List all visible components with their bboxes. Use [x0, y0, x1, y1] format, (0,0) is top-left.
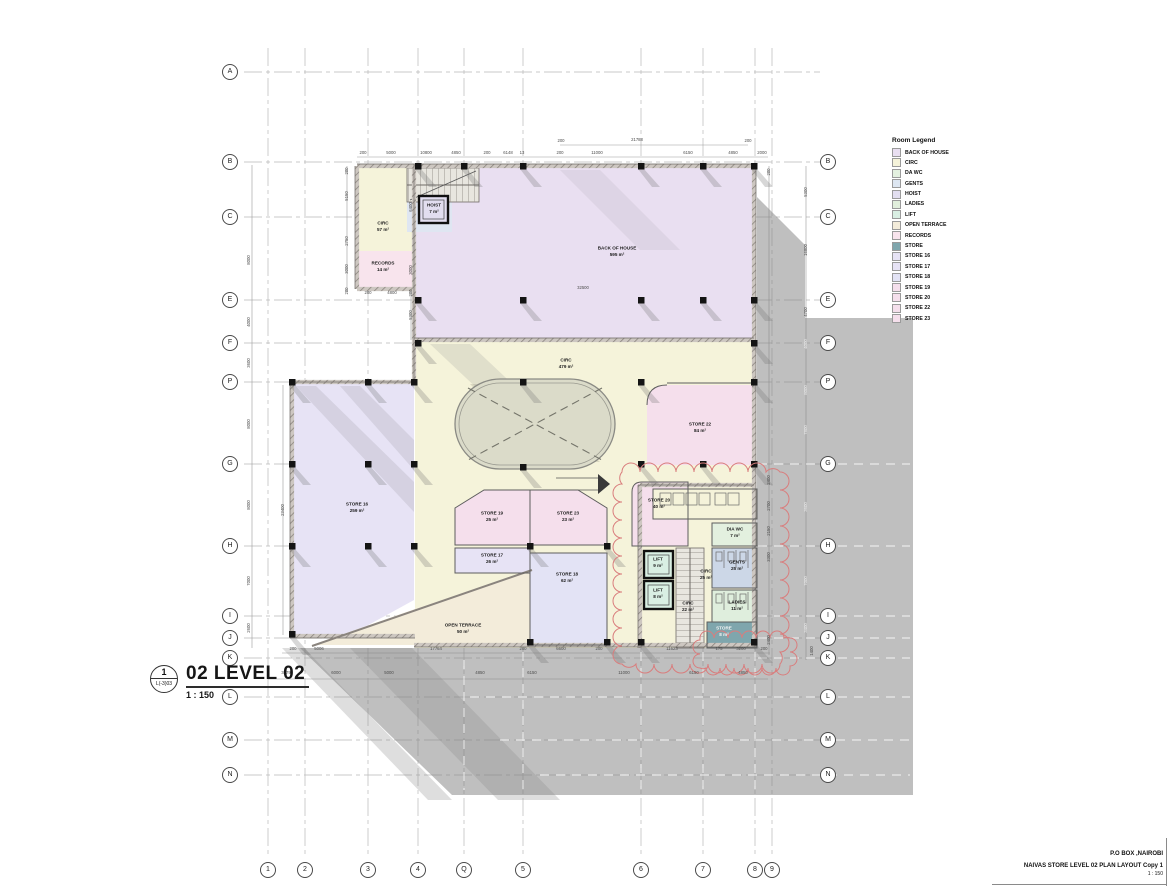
dimension-text: 200 — [359, 150, 366, 155]
dimension-text: 4700 — [803, 307, 808, 316]
legend-label: RECORDS — [905, 233, 931, 239]
dimension-text: 6000 — [331, 670, 340, 675]
dimension-text: 5300 — [408, 310, 413, 319]
room-label: LIFT 8 m² — [653, 588, 663, 600]
dimension-text: 2000 — [757, 150, 766, 155]
legend-label: CIRC — [905, 160, 918, 166]
title-block-border-vertical — [1166, 838, 1167, 886]
grid-bubble: 7 — [695, 862, 711, 878]
room-label: STORE 17 26 m² — [481, 553, 503, 565]
dimension-text: 3000 — [408, 265, 413, 274]
dimension-text: 2700 — [766, 501, 771, 510]
grid-bubble: P — [222, 374, 238, 390]
grid-bubble: C — [222, 209, 238, 225]
dimension-text: 3200 — [736, 646, 745, 651]
grid-bubble: A — [222, 64, 238, 80]
legend-label: HOIST — [905, 191, 921, 197]
legend-label: STORE 23 — [905, 316, 930, 322]
view-title-scale: 1 : 150 — [186, 690, 309, 700]
dimension-text: 2150 — [766, 526, 771, 535]
dimension-text: 5006 — [314, 646, 323, 651]
dimension-text: 7000 — [803, 576, 808, 585]
legend-items: BACK OF HOUSE CIRC DA WC GENTS HOIST LAD… — [892, 149, 1002, 322]
grid-bubble: F — [222, 335, 238, 351]
dimension-text: 4000 — [246, 317, 251, 326]
room-legend: Room Legend BACK OF HOUSE CIRC DA WC GEN… — [892, 137, 1002, 326]
dimension-text: 6150 — [683, 150, 692, 155]
room-label: HOIST 7 m² — [427, 203, 441, 215]
dimension-text: 11000 — [591, 150, 603, 155]
legend-swatch — [892, 190, 901, 199]
dimension-text: 8000 — [246, 500, 251, 509]
dimension-text: 3600 — [803, 502, 808, 511]
legend-item: LADIES — [892, 201, 1002, 208]
dimension-text: 11000 — [618, 670, 630, 675]
legend-label: OPEN TERRACE — [905, 222, 947, 228]
dimension-text: 200 — [766, 168, 771, 175]
room-label: STORE 22 84 m² — [689, 422, 711, 434]
legend-item: STORE 22 — [892, 305, 1002, 312]
dimension-text: 200 — [595, 646, 602, 651]
room-label: STORE 20 40 m² — [648, 498, 670, 510]
room-label: CIRC 57 m² — [377, 221, 389, 233]
legend-swatch — [892, 221, 901, 230]
dimension-text: 1400 — [809, 646, 814, 655]
dimension-text: 3400 — [803, 623, 808, 632]
view-title-label: 02 LEVEL 02 — [186, 663, 309, 688]
legend-item: STORE 16 — [892, 253, 1002, 260]
floor-plan-graphics — [0, 0, 1170, 896]
dimension-text: 7000 — [246, 576, 251, 585]
legend-label: STORE — [905, 243, 923, 249]
grid-bubble: E — [222, 292, 238, 308]
legend-swatch — [892, 179, 901, 188]
dimension-text: 175 — [715, 646, 722, 651]
grid-bubble: 1 — [260, 862, 276, 878]
grid-bubble: M — [820, 732, 836, 748]
legend-swatch — [892, 231, 901, 240]
dimension-text: 5000 — [384, 670, 393, 675]
grid-bubble: G — [222, 456, 238, 472]
dimension-text: 17764 — [430, 646, 442, 651]
dimension-text: 3000 — [344, 264, 349, 273]
dimension-text: 4850 — [728, 150, 737, 155]
dimension-text: 6600 — [556, 646, 565, 651]
legend-item: STORE 20 — [892, 294, 1002, 301]
drawing-sheet: ABCEFPGHIJKLMN BCEFPGHIJKLMN 1234Q56789 … — [0, 0, 1170, 896]
dimension-text: 8000 — [246, 255, 251, 264]
title-block-border-horizontal — [992, 884, 1167, 885]
dimension-text: 11623 — [666, 646, 678, 651]
grid-bubble: P — [820, 374, 836, 390]
legend-swatch — [892, 283, 901, 292]
legend-label: STORE 17 — [905, 264, 930, 270]
legend-label: GENTS — [905, 181, 923, 187]
dimension-text: 3600 — [246, 358, 251, 367]
dimension-text: 200 — [344, 287, 349, 294]
grid-bubble: 8 — [747, 862, 763, 878]
view-marker-sheet: L(-3)03 — [151, 679, 177, 689]
legend-item: STORE 18 — [892, 274, 1002, 281]
grid-bubble: K — [820, 650, 836, 666]
legend-title: Room Legend — [892, 137, 1002, 144]
atrium-void — [455, 379, 615, 469]
view-title: 1 L(-3)03 02 LEVEL 02 1 : 150 — [150, 663, 309, 700]
room-label: STORE 23 23 m² — [557, 511, 579, 523]
dimension-text: 7800 — [803, 425, 808, 434]
dimension-text: 2600 — [246, 623, 251, 632]
dimension-text: 6150 — [527, 670, 536, 675]
dimension-text: 200 — [483, 150, 490, 155]
room-label: DIA WC 7 m² — [727, 527, 744, 539]
room-label: OPEN TERRACE 50 m² — [445, 623, 482, 635]
title-block-address: P.O BOX ,NAIROBI — [930, 851, 1163, 857]
legend-item: RECORDS — [892, 232, 1002, 239]
legend-swatch — [892, 314, 901, 323]
legend-swatch — [892, 158, 901, 167]
grid-bubble: H — [222, 538, 238, 554]
dimension-text: 2400 — [766, 475, 771, 484]
legend-swatch — [892, 169, 901, 178]
legend-item: STORE 17 — [892, 263, 1002, 270]
dimension-text: 200 — [556, 150, 563, 155]
grid-bubble: J — [222, 630, 238, 646]
dimension-text: 32500 — [577, 285, 589, 290]
dimension-text: 4850 — [451, 150, 460, 155]
dimension-text: 200 — [364, 290, 371, 295]
room-label: STORE 19 25 m² — [481, 511, 503, 523]
legend-swatch — [892, 242, 901, 251]
grid-bubble: C — [820, 209, 836, 225]
room-label: RECORDS 14 m² — [371, 261, 394, 273]
legend-label: LIFT — [905, 212, 916, 218]
dimension-text: 200 — [289, 646, 296, 651]
legend-item: GENTS — [892, 180, 1002, 187]
grid-bubble: H — [820, 538, 836, 554]
legend-swatch — [892, 148, 901, 157]
grid-bubble: 6 — [633, 862, 649, 878]
dimension-text: 200 — [744, 138, 751, 143]
dimension-text: 4800 — [387, 290, 396, 295]
legend-item: OPEN TERRACE — [892, 222, 1002, 229]
dimension-text: 4850 — [475, 670, 484, 675]
dimension-text: 4000 — [803, 339, 808, 348]
legend-label: STORE 19 — [905, 285, 930, 291]
grid-bubble: N — [820, 767, 836, 783]
dimension-text: 6148 — [503, 150, 512, 155]
dimension-text: 10800 — [420, 150, 432, 155]
legend-label: STORE 22 — [905, 306, 930, 312]
grid-bubble: I — [820, 608, 836, 624]
grid-bubble: 2 — [297, 862, 313, 878]
grid-bubble: G — [820, 456, 836, 472]
dimension-text: 200 — [760, 646, 767, 651]
dimension-text: 2750 — [344, 236, 349, 245]
legend-label: STORE 16 — [905, 254, 930, 260]
dimension-text: 21788 — [631, 137, 643, 142]
legend-item: STORE 19 — [892, 284, 1002, 291]
dimension-text: 4850 — [738, 670, 747, 675]
title-block-scale: 1 : 150 — [930, 871, 1163, 877]
grid-bubble: B — [222, 154, 238, 170]
room-label: LIFT 9 m² — [653, 557, 663, 569]
legend-item: LIFT — [892, 211, 1002, 218]
grid-bubble: L — [820, 689, 836, 705]
legend-item: STORE 23 — [892, 315, 1002, 322]
dimension-text: 6150 — [689, 670, 698, 675]
dimension-text: 5000 — [386, 150, 395, 155]
grid-bubble: F — [820, 335, 836, 351]
legend-label: BACK OF HOUSE — [905, 150, 949, 156]
legend-swatch — [892, 262, 901, 271]
grid-bubble: E — [820, 292, 836, 308]
title-block: P.O BOX ,NAIROBI NAIVAS STORE LEVEL 02 P… — [930, 851, 1163, 877]
room-label: GENTS 25 m² — [729, 560, 745, 572]
room-label: STORE 16 259 m² — [346, 502, 368, 514]
grid-bubble: Q — [456, 862, 472, 878]
legend-label: STORE 20 — [905, 295, 930, 301]
grid-bubble: I — [222, 608, 238, 624]
legend-item: BACK OF HOUSE — [892, 149, 1002, 156]
room-label: CIRC 25 m² — [700, 569, 712, 581]
view-marker: 1 L(-3)03 — [150, 665, 178, 693]
legend-swatch — [892, 273, 901, 282]
grid-bubble: 3 — [360, 862, 376, 878]
room-label: STORE 8 m² — [716, 626, 732, 638]
grid-bubble: 9 — [764, 862, 780, 878]
legend-label: STORE 18 — [905, 274, 930, 280]
grid-bubble: N — [222, 767, 238, 783]
legend-swatch — [892, 200, 901, 209]
legend-label: DA WC — [905, 170, 923, 176]
view-marker-number: 1 — [151, 666, 177, 679]
dimension-text: 2400 — [766, 635, 771, 644]
grid-bubble: B — [820, 154, 836, 170]
dimension-text: 8000 — [246, 419, 251, 428]
dimension-text: 3300 — [766, 552, 771, 561]
legend-item: DA WC — [892, 170, 1002, 177]
dimension-text: 200 — [557, 138, 564, 143]
dimension-text: 16800 — [803, 244, 808, 256]
room-label: STORE 18 62 m² — [556, 572, 578, 584]
legend-item: STORE — [892, 243, 1002, 250]
legend-item: CIRC — [892, 159, 1002, 166]
dimension-text: 200 — [519, 646, 526, 651]
legend-swatch — [892, 304, 901, 313]
grid-bubble: M — [222, 732, 238, 748]
dimension-text: 23400 — [280, 504, 285, 516]
dimension-text: 8000 — [803, 385, 808, 394]
staircase-bottom-right — [676, 548, 704, 648]
room-label: BACK OF HOUSE 595 m² — [598, 246, 637, 258]
dimension-text: 5300 — [803, 187, 808, 196]
title-block-drawing: NAIVAS STORE LEVEL 02 PLAN LAYOUT Copy 1 — [930, 863, 1163, 869]
dimension-text: 5150 — [344, 191, 349, 200]
grid-bubble: 5 — [515, 862, 531, 878]
dimension-text: 6400 — [408, 202, 413, 211]
legend-swatch — [892, 252, 901, 261]
grid-bubble: 4 — [410, 862, 426, 878]
dimension-text: 13 — [520, 150, 525, 155]
room-label: CIRC 22 m² — [682, 601, 694, 613]
dimension-text: 200 — [408, 289, 413, 296]
room-label: CIRC 479 m² — [559, 358, 574, 370]
grid-bubble: J — [820, 630, 836, 646]
legend-label: LADIES — [905, 202, 924, 208]
dimension-text: 200 — [344, 167, 349, 174]
legend-swatch — [892, 293, 901, 302]
legend-item: HOIST — [892, 191, 1002, 198]
legend-swatch — [892, 210, 901, 219]
room-label: LADIES 11 m² — [729, 600, 746, 612]
